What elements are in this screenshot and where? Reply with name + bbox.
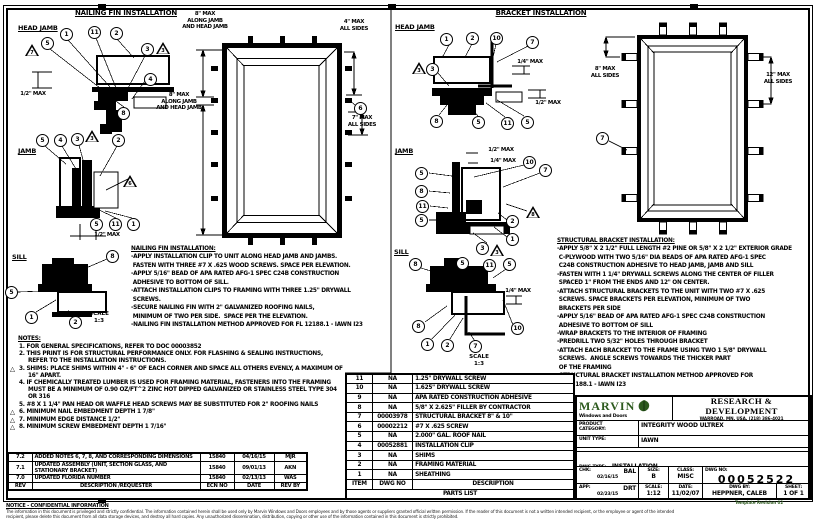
- note-text: 3. SHIMS: PLACE SHIMS WITHIN 4" - 6" OF …: [19, 366, 344, 380]
- bracket-elevation: [604, 23, 773, 234]
- revision-cell: AKN: [274, 461, 307, 474]
- parts-list-row: 8NA5/8" X 2.625" FILLER BY CONTRACTOR: [346, 403, 574, 413]
- note-item: △6. MINIMUM NAIL EMBEDMENT DEPTH 1 7/8": [10, 409, 344, 416]
- parts-cell: 00003978: [372, 412, 412, 422]
- logo-cell: MARVIN Windows and Doors: [577, 397, 673, 420]
- note-item: 4. IF CHEMICALLY TREATED LUMBER IS USED …: [10, 380, 344, 401]
- company-address: WARROAD, MN, USA, (218) 386-4021: [675, 416, 808, 420]
- nailing-fin-instructions-heading: NAILING FIN INSTALLATION:: [131, 245, 393, 253]
- parts-cell: 1: [346, 470, 372, 480]
- parts-cell: FRAMING MATERIAL: [413, 460, 574, 470]
- app-date: 02/23/15: [579, 492, 636, 497]
- note-item: △3. SHIMS: PLACE SHIMS WITHIN 4" - 6" OF…: [10, 366, 344, 380]
- scale-cell: SCALE: 1:12: [639, 484, 669, 498]
- parts-list-row: 600002212#7 X .625 SCREW: [346, 422, 574, 432]
- date-cell: DATE: 11/02/07: [669, 484, 703, 498]
- parts-caption-row: PARTS LIST: [346, 489, 574, 499]
- dwg-type-label: DWG TYPE:: [579, 465, 606, 466]
- revision-cell: MJR: [274, 453, 307, 461]
- dwg-by-value: HEPPNER, CALEB: [705, 490, 774, 497]
- revision-table: 7.2ADDED NOTES 6, 7, 8, AND CORRESPONDIN…: [7, 452, 308, 491]
- bracket-title: BRACKET INSTALLATION: [466, 9, 616, 17]
- revision-cell: UPDATED ASSEMBLY (UNIT, SECTION GLASS, A…: [32, 461, 200, 474]
- parts-cell: SHEATHING: [413, 470, 574, 480]
- parts-list-row: 5NA2.000" GAL. ROOF NAIL: [346, 432, 574, 442]
- parts-list-table: 11NA1.25" DRYWALL SCREW10NA1.625" DRYWAL…: [345, 373, 575, 500]
- notes-heading: NOTES:: [18, 336, 344, 343]
- revision-row: 7.1UPDATED ASSEMBLY (UNIT, SECTION GLASS…: [8, 461, 307, 474]
- marvin-leaf-icon: [637, 399, 651, 413]
- parts-cell: 2.000" GAL. ROOF NAIL: [413, 432, 574, 442]
- parts-list-row: 1NASHEATHING: [346, 470, 574, 480]
- revision-cell: WAS: [274, 474, 307, 482]
- parts-cell: 5/8" X 2.625" FILLER BY CONTRACTOR: [413, 403, 574, 413]
- revision-cell: 02/13/13: [234, 474, 274, 482]
- size-cell: SIZE: B: [639, 467, 669, 483]
- notes-section: NOTES: 1. FOR GENERAL SPECIFICATIONS, RE…: [10, 336, 344, 431]
- note-marker: [10, 344, 19, 351]
- scale-value: 1:12: [641, 490, 666, 497]
- parts-header-cell: ITEM: [346, 480, 372, 490]
- revision-header-cell: DESCRIPTION /REQUESTER: [32, 482, 200, 490]
- dimension-label: 8" MAX ALONG JAMB AND HEAD JAMB: [146, 92, 212, 112]
- dimension-label: 1/4" MAX: [496, 288, 540, 295]
- note-triangle-icon: △: [10, 424, 19, 431]
- dwg-by-cell: DWG BY: HEPPNER, CALEB: [703, 484, 777, 498]
- dimension-label: 1/2" MAX: [526, 100, 570, 107]
- note-marker: [10, 380, 19, 401]
- app-cell: APP:DRT 02/23/15: [577, 484, 639, 498]
- class-cell: CLASS: MISC: [669, 467, 703, 483]
- parts-cell: 5: [346, 432, 372, 442]
- note-item: △8. MINIMUM SCREW EMBEDMENT DEPTH 1 7/16…: [10, 424, 344, 431]
- parts-cell: 7: [346, 412, 372, 422]
- note-text: 7. MINIMUM EDGE DISTANCE 1/2": [19, 417, 344, 424]
- parts-cell: NA: [372, 374, 412, 384]
- revision-cell: 04/16/15: [234, 453, 274, 461]
- chk-label: CHK:: [579, 468, 591, 475]
- parts-cell: 2: [346, 460, 372, 470]
- sheet-value: 1 OF 1: [779, 490, 808, 497]
- parts-cell: 10: [346, 384, 372, 394]
- br-sill-section: [421, 258, 522, 341]
- parts-cell: 1.625" DRYWALL SCREW: [413, 384, 574, 394]
- revision-cell: 7.1: [8, 461, 32, 474]
- parts-cell: NA: [372, 403, 412, 413]
- revision-cell: 7.2: [8, 453, 32, 461]
- parts-cell: 4: [346, 441, 372, 451]
- revision-cell: 15840: [200, 453, 234, 461]
- nf-sill-section: [18, 258, 107, 317]
- revision-cell: 15840: [200, 474, 234, 482]
- footer-line: recipient, please delete this document f…: [6, 514, 810, 519]
- parts-list-row: 700003978STRUCTURAL BRACKET 8" & 10": [346, 412, 574, 422]
- nf-sill-label: SILL: [12, 253, 27, 261]
- revision-cell: 09/01/13: [234, 461, 274, 474]
- nf-head-jamb-section: [32, 38, 174, 134]
- parts-cell: NA: [372, 451, 412, 461]
- unit-type-value: IAWN: [639, 436, 810, 447]
- parts-cell: NA: [372, 470, 412, 480]
- parts-cell: 00002212: [372, 422, 412, 432]
- spacer-cell: [577, 448, 810, 451]
- note-item: △7. MINIMUM EDGE DISTANCE 1/2": [10, 417, 344, 424]
- parts-cell: SHIMS: [413, 451, 574, 461]
- parts-cell: APA RATED CONSTRUCTION ADHESIVE: [413, 393, 574, 403]
- parts-list-row: 9NAAPA RATED CONSTRUCTION ADHESIVE: [346, 393, 574, 403]
- nf-scale-label: SCALE 1:3: [82, 311, 116, 325]
- dwg-no-value: 00052522: [705, 473, 808, 483]
- parts-cell: 9: [346, 393, 372, 403]
- br-scale-label: SCALE 1:3: [462, 354, 496, 368]
- marvin-tagline: Windows and Doors: [579, 414, 670, 419]
- dimension-label: 1/2" MAX: [478, 147, 524, 154]
- br-sill-label: SILL: [394, 248, 409, 256]
- note-text: 5. #8 X 1 1/4" PAN HEAD OR WAFFLE HEAD S…: [19, 402, 344, 409]
- parts-cell: NA: [372, 393, 412, 403]
- note-text: 2. THIS PRINT IS FOR STRUCTURAL PERFORMA…: [19, 351, 344, 365]
- parts-list-caption: PARTS LIST: [346, 489, 574, 499]
- parts-cell: 3: [346, 451, 372, 461]
- revision-header-row: REV DESCRIPTION /REQUESTER ECN NO DATE R…: [8, 482, 307, 490]
- bracket-instructions-body: -APPLY 5/8" X 2 1/2" FULL LENGTH #2 PINE…: [557, 245, 813, 389]
- revision-header-cell: REV BY: [274, 482, 307, 490]
- revision-row: 7.2ADDED NOTES 6, 7, 8, AND CORRESPONDIN…: [8, 453, 307, 461]
- size-value: B: [641, 473, 666, 480]
- app-label: APP:: [579, 485, 590, 492]
- parts-list-row: 11NA1.25" DRYWALL SCREW: [346, 374, 574, 384]
- parts-list-row: 3NASHIMS: [346, 451, 574, 461]
- app-value: DRT: [623, 485, 636, 492]
- drawing-sheet: NAILING FIN INSTALLATION BRACKET INSTALL…: [0, 0, 816, 528]
- revision-cell: 15840: [200, 461, 234, 474]
- parts-cell: NA: [372, 460, 412, 470]
- bracket-instructions: STRUCTURAL BRACKET INSTALLATION: -APPLY …: [557, 237, 813, 389]
- note-triangle-icon: △: [10, 366, 19, 380]
- parts-cell: 8: [346, 403, 372, 413]
- revision-header-cell: DATE: [234, 482, 274, 490]
- revision-header-cell: REV: [8, 482, 32, 490]
- note-text: 4. IF CHEMICALLY TREATED LUMBER IS USED …: [19, 380, 344, 401]
- unit-type-label: UNIT TYPE:: [577, 436, 639, 447]
- note-text: 6. MINIMUM NAIL EMBEDMENT DEPTH 1 7/8": [19, 409, 344, 416]
- dimension-label: 1/4" MAX: [508, 59, 552, 66]
- dwg-type-cell: DWG TYPE: INSTALLATION DESCRIPTION: FL12…: [577, 452, 810, 466]
- product-category-value: INTEGRITY WOOD ULTREX: [639, 421, 810, 435]
- parts-list-row: 2NAFRAMING MATERIAL: [346, 460, 574, 470]
- revision-header-cell: ECN NO: [200, 482, 234, 490]
- date-value: 11/02/07: [671, 490, 700, 497]
- nf-jamb-label: JAMB: [18, 147, 36, 155]
- marvin-logo: MARVIN: [579, 399, 635, 414]
- chk-value: BAL: [624, 468, 636, 475]
- revision-cell: ADDED NOTES 6, 7, 8, AND CORRESPONDING D…: [32, 453, 200, 461]
- note-marker: [10, 351, 19, 365]
- note-triangle-icon: △: [10, 409, 19, 416]
- sheet-cell: SHEET: 1 OF 1: [777, 484, 810, 498]
- dimension-label: 12" MAX ALL SIDES: [754, 72, 802, 85]
- bracket-instructions-heading: STRUCTURAL BRACKET INSTALLATION:: [557, 237, 813, 245]
- parts-list-row: 10NA1.625" DRYWALL SCREW: [346, 384, 574, 394]
- dimension-label: 1/2" MAX: [84, 232, 130, 239]
- dept-cell: RESEARCH & DEVELOPMENT WARROAD, MN, USA,…: [673, 397, 810, 420]
- note-text: 8. MINIMUM SCREW EMBEDMENT DEPTH 1 7/16": [19, 424, 344, 431]
- department-name: RESEARCH & DEVELOPMENT: [675, 397, 808, 416]
- parts-cell: 00052881: [372, 441, 412, 451]
- product-category-label: PRODUCT CATEGORY:: [577, 421, 639, 435]
- br-jamb-label: JAMB: [395, 147, 413, 155]
- confidentiality-footer: NOTICE - CONFIDENTIAL INFORMATION The in…: [6, 503, 810, 519]
- br-head-jamb-label: HEAD JAMB: [395, 23, 435, 31]
- title-block: MARVIN Windows and Doors RESEARCH & DEVE…: [575, 395, 812, 500]
- parts-cell: #7 X .625 SCREW: [413, 422, 574, 432]
- parts-cell: STRUCTURAL BRACKET 8" & 10": [413, 412, 574, 422]
- note-item: 5. #8 X 1 1/4" PAN HEAD OR WAFFLE HEAD S…: [10, 402, 344, 409]
- chk-date: 02/16/15: [579, 475, 636, 480]
- revision-cell: UPDATED FLORIDA NUMBER: [32, 474, 200, 482]
- dwg-no-cell: DWG NO: 00052522: [703, 467, 810, 483]
- dimension-label: 8" MAX ALONG JAMB AND HEAD JAMB: [172, 11, 238, 31]
- nailing-fin-elevation: [196, 36, 368, 245]
- parts-header-cell: DESCRIPTION: [413, 480, 574, 490]
- parts-cell: 11: [346, 374, 372, 384]
- parts-list-row: 400052881INSTALLATION CLIP: [346, 441, 574, 451]
- nailing-fin-instructions: NAILING FIN INSTALLATION: -APPLY INSTALL…: [131, 245, 393, 330]
- parts-cell: 6: [346, 422, 372, 432]
- dwg-type-value: INSTALLATION: [612, 463, 658, 466]
- parts-cell: 1.25" DRYWALL SCREW: [413, 374, 574, 384]
- revision-row: 7.0UPDATED FLORIDA NUMBER1584002/13/13WA…: [8, 474, 307, 482]
- parts-header-cell: DWG NO: [372, 480, 412, 490]
- revision-cell: 7.0: [8, 474, 32, 482]
- dimension-label: 1/2" MAX: [12, 91, 54, 98]
- note-text: 1. FOR GENERAL SPECIFICATIONS, REFER TO …: [19, 344, 344, 351]
- dimension-label: 4" MAX ALL SIDES: [328, 19, 380, 32]
- nailing-fin-instructions-body: -APPLY INSTALLATION CLIP TO UNIT ALONG H…: [131, 253, 393, 329]
- class-value: MISC: [671, 473, 700, 480]
- parts-cell: INSTALLATION CLIP: [413, 441, 574, 451]
- nf-head-jamb-label: HEAD JAMB: [18, 24, 58, 32]
- parts-header-row: ITEM DWG NO DESCRIPTION: [346, 480, 574, 490]
- dimension-label: 7" MAX ALL SIDES: [334, 115, 390, 128]
- chk-cell: CHK:BAL 02/16/15: [577, 467, 639, 483]
- note-item: 1. FOR GENERAL SPECIFICATIONS, REFER TO …: [10, 344, 344, 351]
- br-jamb-section: [429, 153, 540, 243]
- parts-cell: NA: [372, 432, 412, 442]
- dimension-label: 1/4" MAX: [480, 158, 526, 165]
- parts-cell: NA: [372, 384, 412, 394]
- nf-jamb-section: [45, 145, 132, 240]
- note-item: 2. THIS PRINT IS FOR STRUCTURAL PERFORMA…: [10, 351, 344, 365]
- dimension-label: 8" MAX ALL SIDES: [584, 66, 626, 79]
